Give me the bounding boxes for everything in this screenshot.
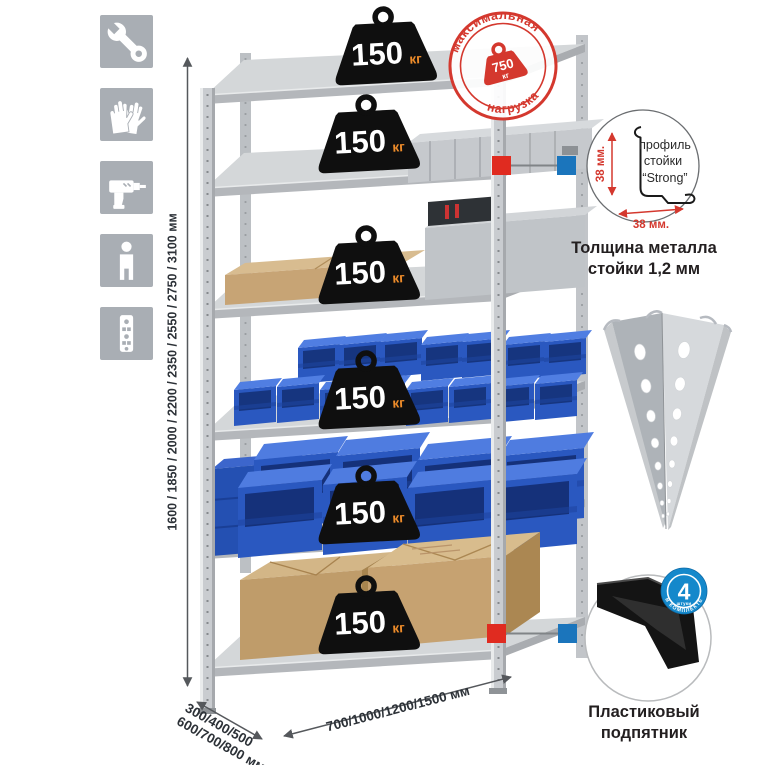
load-unit: кг: [392, 139, 406, 155]
foot-caption-line2: подпятник: [564, 723, 724, 744]
profile-dim-horizontal: 38 мм.: [633, 219, 669, 231]
profile-label-2: стойки: [644, 154, 682, 168]
load-value: 150: [333, 254, 386, 292]
load-unit: кг: [392, 510, 406, 526]
depth-dimension: 300/400/500 600/700/800 мм: [174, 700, 268, 765]
load-unit: кг: [409, 51, 423, 67]
profile-dim-vertical: 38 мм.: [595, 146, 607, 182]
callout-bottom-blue-square: [558, 624, 577, 643]
height-label: 1600 / 1850 / 2000 / 2200 / 2350 / 2550 …: [166, 213, 180, 530]
height-dimension: 1600 / 1850 / 2000 / 2200 / 2350 / 2550 …: [166, 58, 188, 686]
load-value: 150: [350, 35, 403, 73]
callout-top-blue-square: [557, 156, 576, 175]
shelf-contents: [212, 119, 604, 660]
callout-top-red-square: [492, 156, 511, 175]
profile-detail-circle: 38 мм. 38 мм. профиль стойки “Strong”: [587, 110, 699, 231]
shelving-rack-infographic: 150 кг 150 кг 150 кг 150 кг 150 кг 150 к…: [0, 0, 765, 765]
load-value: 150: [333, 494, 386, 532]
weight-badge-2: 150 кг: [315, 94, 420, 173]
profile-caption: Толщина металла стойки 1,2 мм: [564, 238, 724, 279]
width-label: 700/1000/1200/1500 мм: [325, 683, 472, 734]
load-unit: кг: [392, 395, 406, 411]
kit-count-badge: 4 штуки В КОМПЛЕКТЕ: [661, 568, 707, 614]
max-load-stamp: 750 кг максимальная нагрузка: [437, 0, 568, 131]
load-value: 150: [333, 379, 386, 417]
foot-caption-line1: Пластиковый: [564, 702, 724, 723]
corner-post-image: [604, 311, 731, 530]
profile-caption-line2: стойки 1,2 мм: [564, 259, 724, 280]
profile-label-1: профиль: [639, 138, 691, 152]
profile-caption-line1: Толщина металла: [564, 238, 724, 259]
load-unit: кг: [392, 620, 406, 636]
weight-badge-3: 150 кг: [315, 225, 420, 304]
profile-label-3: “Strong”: [642, 171, 687, 185]
load-value: 150: [333, 123, 386, 161]
foot-detail-circle: 4 штуки В КОМПЛЕКТЕ: [585, 568, 711, 701]
rack-illustration: 150 кг 150 кг 150 кг 150 кг 150 кг 150 к…: [0, 0, 765, 765]
badge-word: штуки: [677, 601, 692, 606]
load-unit: кг: [392, 270, 406, 286]
width-dimension: 700/1000/1200/1500 мм: [284, 677, 511, 736]
callout-bottom-red-square: [487, 624, 506, 643]
foot-caption: Пластиковый подпятник: [564, 702, 724, 743]
load-value: 150: [333, 604, 386, 642]
weight-badge-1: 150 кг: [332, 6, 437, 85]
